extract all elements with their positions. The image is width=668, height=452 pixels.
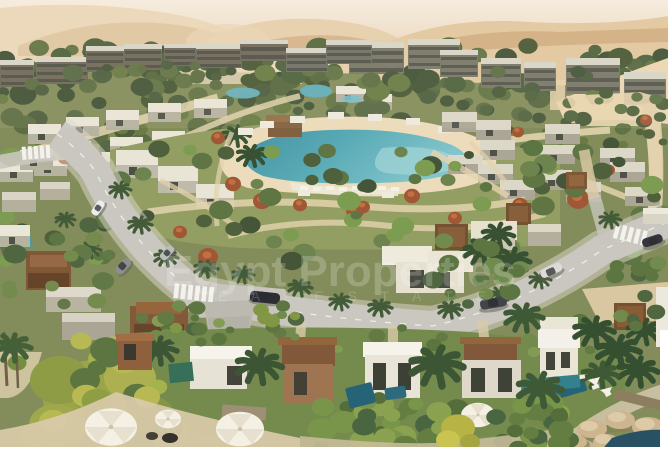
svg-text:R E A L E S T A T E: R E A L E S T A T E [184, 288, 495, 304]
